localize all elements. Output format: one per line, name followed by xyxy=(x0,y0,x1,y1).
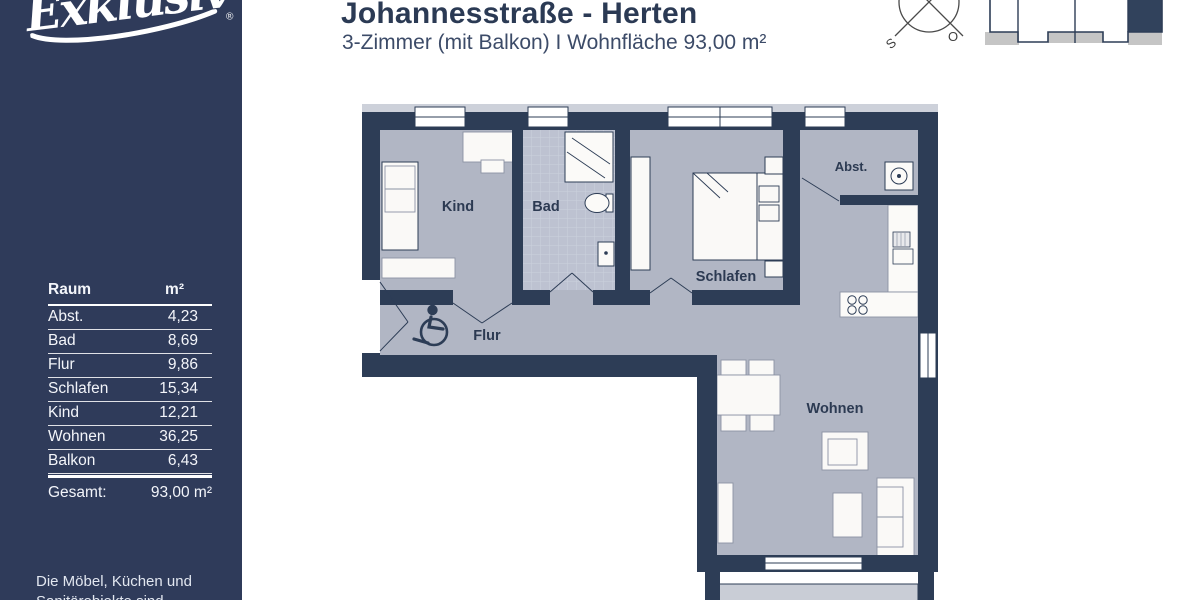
compass-south-label: S xyxy=(883,35,900,52)
armchair-icon xyxy=(822,432,868,470)
double-bed-icon xyxy=(693,173,783,260)
window-icon xyxy=(805,107,845,127)
room-name: Abst. xyxy=(48,308,83,326)
total-label: Gesamt: xyxy=(48,484,107,502)
sidebar: Exklusiv ® Raum m² Abst. 4,23 Bad 8,69 F… xyxy=(0,0,242,600)
keyplan-highlighted-unit xyxy=(1128,0,1162,32)
table-row: Abst. 4,23 xyxy=(48,306,212,330)
disclaimer-line-1: Die Möbel, Küchen und xyxy=(36,572,236,592)
keyplan-terrace xyxy=(985,32,1019,45)
washing-machine-icon xyxy=(885,162,913,190)
sideboard-icon xyxy=(718,483,733,543)
room-label-schlafen: Schlafen xyxy=(696,269,756,285)
shelf-icon xyxy=(382,258,455,278)
kitchen-counter xyxy=(888,205,918,292)
room-name: Bad xyxy=(48,332,76,350)
building-keyplan xyxy=(985,0,1165,50)
room-area: 6,43 xyxy=(134,452,212,470)
room-area: 4,23 xyxy=(134,308,212,326)
room-name: Wohnen xyxy=(48,428,105,446)
room-label-wohnen: Wohnen xyxy=(807,401,864,417)
room-name: Flur xyxy=(48,356,75,374)
page-subtitle: 3-Zimmer (mit Balkon) I Wohnfläche 93,00… xyxy=(342,31,766,55)
shower-icon xyxy=(565,132,613,182)
desk-icon xyxy=(463,132,518,162)
room-name: Balkon xyxy=(48,452,95,470)
nightstand-icon xyxy=(765,157,783,174)
window-icon xyxy=(415,107,465,127)
table-row: Schlafen 15,34 xyxy=(48,378,212,402)
floorplan-sheet: Exklusiv ® Raum m² Abst. 4,23 Bad 8,69 F… xyxy=(0,0,1200,600)
table-row: Wohnen 36,25 xyxy=(48,426,212,450)
nightstand-icon xyxy=(765,261,783,277)
room-area: 36,25 xyxy=(134,428,212,446)
room-area: 8,69 xyxy=(134,332,212,350)
disclaimer-text: Die Möbel, Küchen und Sanitärobjekte sin… xyxy=(36,572,236,600)
total-value: 93,00 m² xyxy=(148,484,212,502)
single-bed-icon xyxy=(382,162,418,250)
keyplan-terrace xyxy=(1128,32,1162,45)
balcony-floor xyxy=(718,584,918,600)
room-label-bad: Bad xyxy=(532,199,559,215)
brand-logo: Exklusiv ® xyxy=(22,0,229,58)
toilet-icon xyxy=(585,194,613,213)
room-area-table: Raum m² Abst. 4,23 Bad 8,69 Flur 9,86 Sc… xyxy=(48,279,212,505)
table-row: Balkon 6,43 xyxy=(48,450,212,474)
chair-icon xyxy=(481,160,504,173)
table-row: Flur 9,86 xyxy=(48,354,212,378)
coffee-table-icon xyxy=(833,493,862,537)
abst-furniture xyxy=(885,162,913,190)
room-area: 15,34 xyxy=(134,380,212,398)
room-name: Kind xyxy=(48,404,79,422)
floorplan: Kind Bad Flur Schlafen Abst. Wohnen xyxy=(360,104,940,600)
wardrobe-icon xyxy=(631,157,650,270)
disclaimer-line-2: Sanitärobjekte sind xyxy=(36,592,236,600)
balcony-door-icon xyxy=(765,557,862,570)
table-header-row: Raum m² xyxy=(48,279,212,306)
compass-icon: S O xyxy=(875,0,985,78)
sofa-icon xyxy=(877,478,914,558)
column-room: Raum xyxy=(48,281,91,299)
table-total-row: Gesamt: 93,00 m² xyxy=(48,475,212,505)
sink-icon xyxy=(598,242,614,266)
registered-mark: ® xyxy=(225,11,234,23)
room-label-kind: Kind xyxy=(442,199,474,215)
window-icon xyxy=(668,107,772,127)
column-area: m² xyxy=(120,281,212,299)
room-name: Schlafen xyxy=(48,380,108,398)
table-row: Bad 8,69 xyxy=(48,330,212,354)
room-label-flur: Flur xyxy=(473,328,501,344)
page-title: Johannesstraße - Herten xyxy=(341,0,697,31)
room-area: 9,86 xyxy=(134,356,212,374)
window-icon xyxy=(528,107,568,127)
window-icon xyxy=(920,333,936,378)
compass-east-label: O xyxy=(948,29,958,44)
table-row: Kind 12,21 xyxy=(48,402,212,426)
room-area: 12,21 xyxy=(134,404,212,422)
room-label-abst: Abst. xyxy=(835,159,868,174)
